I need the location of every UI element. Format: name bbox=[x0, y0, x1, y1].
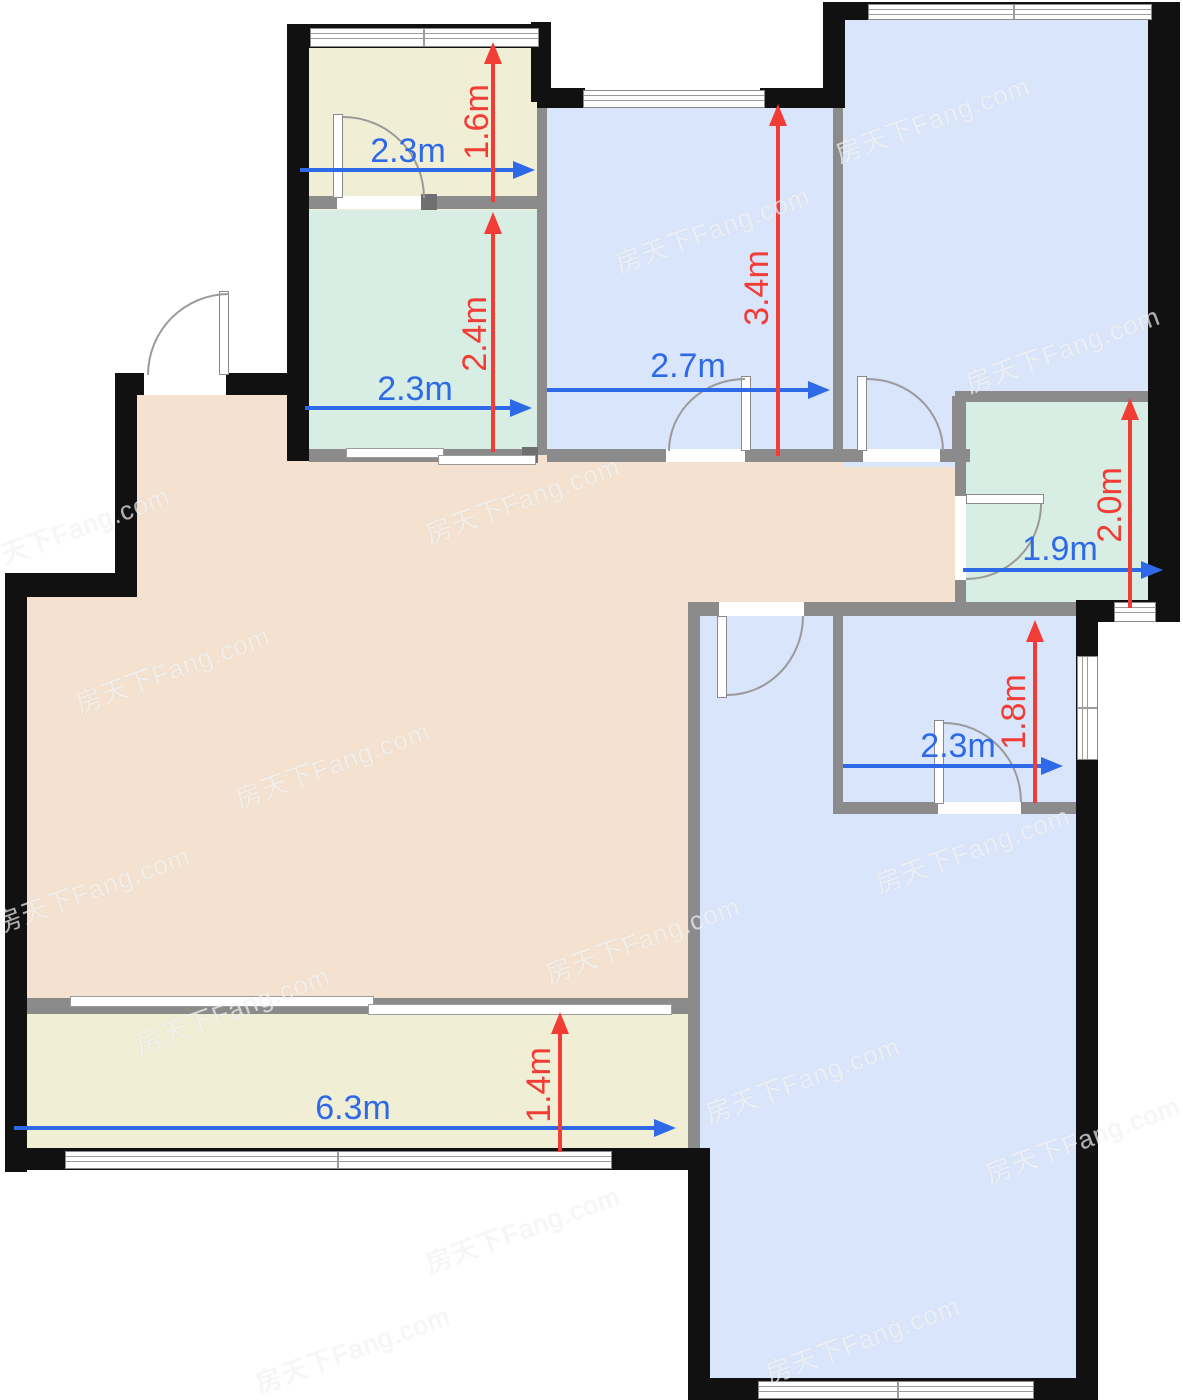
window-storage-right bbox=[1077, 656, 1098, 760]
bedroom-bottom-door-leaf bbox=[717, 616, 727, 698]
dim-label-bedroom-middle-height: 3.4m bbox=[737, 228, 777, 348]
window-bedroom-middle bbox=[583, 90, 765, 108]
dim-arrowhead bbox=[1121, 398, 1139, 420]
dim-arrow-bedroom-middle-width bbox=[547, 388, 810, 392]
room-living-dining-floor bbox=[26, 585, 688, 1015]
dim-arrowhead bbox=[654, 1119, 676, 1137]
window-bedroom-top-right bbox=[868, 4, 1152, 20]
dim-arrowhead bbox=[769, 104, 787, 126]
window-pane-divider bbox=[423, 29, 425, 46]
wall-kitchen-right bbox=[537, 96, 547, 455]
dim-label-balcony-top-width: 2.3m bbox=[348, 131, 468, 171]
window-pane-divider bbox=[337, 1152, 339, 1168]
wall-bedroom-middle-right bbox=[833, 104, 843, 462]
window-pane-divider bbox=[1013, 5, 1015, 19]
wall-left-upper-block bbox=[287, 24, 309, 461]
window-balcony-top bbox=[310, 28, 539, 47]
window-bedroom-bottom bbox=[758, 1381, 1034, 1399]
window-balcony-bottom bbox=[65, 1151, 612, 1169]
dim-arrowhead bbox=[808, 381, 830, 399]
bathroom-door-leaf bbox=[966, 494, 1044, 504]
dim-label-balcony-bottom-height: 1.4m bbox=[519, 1025, 559, 1145]
dim-label-storage-height: 1.8m bbox=[994, 652, 1034, 772]
dim-label-balcony-top-height: 1.6m bbox=[457, 62, 497, 182]
floor-plan: 2.3m 1.6m 2.3m 2.4m 2.7m 3.4m 1.9m 2.0m … bbox=[0, 0, 1183, 1400]
watermark-text: 房天下Fang.com bbox=[420, 1176, 625, 1281]
window-pane-divider bbox=[897, 1382, 899, 1398]
wall-left-lower bbox=[5, 573, 27, 1172]
dim-arrowhead bbox=[1026, 620, 1044, 642]
kitchen-sliding-panel bbox=[346, 448, 444, 458]
dim-arrowhead bbox=[510, 399, 532, 417]
dim-arrowhead bbox=[1041, 757, 1063, 775]
storage-door-opening bbox=[938, 802, 1021, 814]
balcony-sliding-panel bbox=[70, 996, 374, 1007]
dim-arrowhead bbox=[513, 161, 535, 179]
wall-left-middle bbox=[115, 373, 137, 597]
balcony-sliding-panel bbox=[368, 1004, 672, 1015]
dim-arrowhead bbox=[484, 42, 502, 64]
dim-arrowhead bbox=[484, 212, 502, 234]
room-kitchen-floor bbox=[309, 210, 537, 455]
dim-label-bathroom-height: 2.0m bbox=[1090, 445, 1130, 565]
dim-arrowhead bbox=[1141, 561, 1163, 579]
balcony-top-door-leaf bbox=[333, 114, 343, 198]
dim-label-kitchen-height: 2.4m bbox=[455, 274, 495, 394]
entrance-door-opening bbox=[144, 373, 226, 395]
kitchen-sliding-panel bbox=[438, 455, 536, 465]
bedroom-bottom-door-opening bbox=[719, 602, 804, 616]
room-balcony-bottom-floor bbox=[26, 1008, 688, 1153]
wall-living-bedroom-divider bbox=[688, 602, 700, 1153]
window-pane-divider bbox=[1078, 707, 1097, 709]
wall-storage-left bbox=[833, 602, 843, 814]
watermark-text: 房天下Fang.com bbox=[250, 1296, 455, 1400]
wall-right-upper bbox=[1148, 2, 1180, 622]
wall-bedroom-bottom-left bbox=[688, 1148, 710, 1400]
dim-label-bedroom-middle-width: 2.7m bbox=[628, 346, 748, 386]
wall-bedroom-middle-top-left bbox=[537, 88, 585, 108]
bedroom-tr-door-leaf bbox=[857, 376, 867, 451]
dim-label-balcony-bottom-width: 6.3m bbox=[293, 1088, 413, 1128]
window-bathroom bbox=[1114, 602, 1156, 622]
entrance-door-arc bbox=[147, 293, 229, 375]
